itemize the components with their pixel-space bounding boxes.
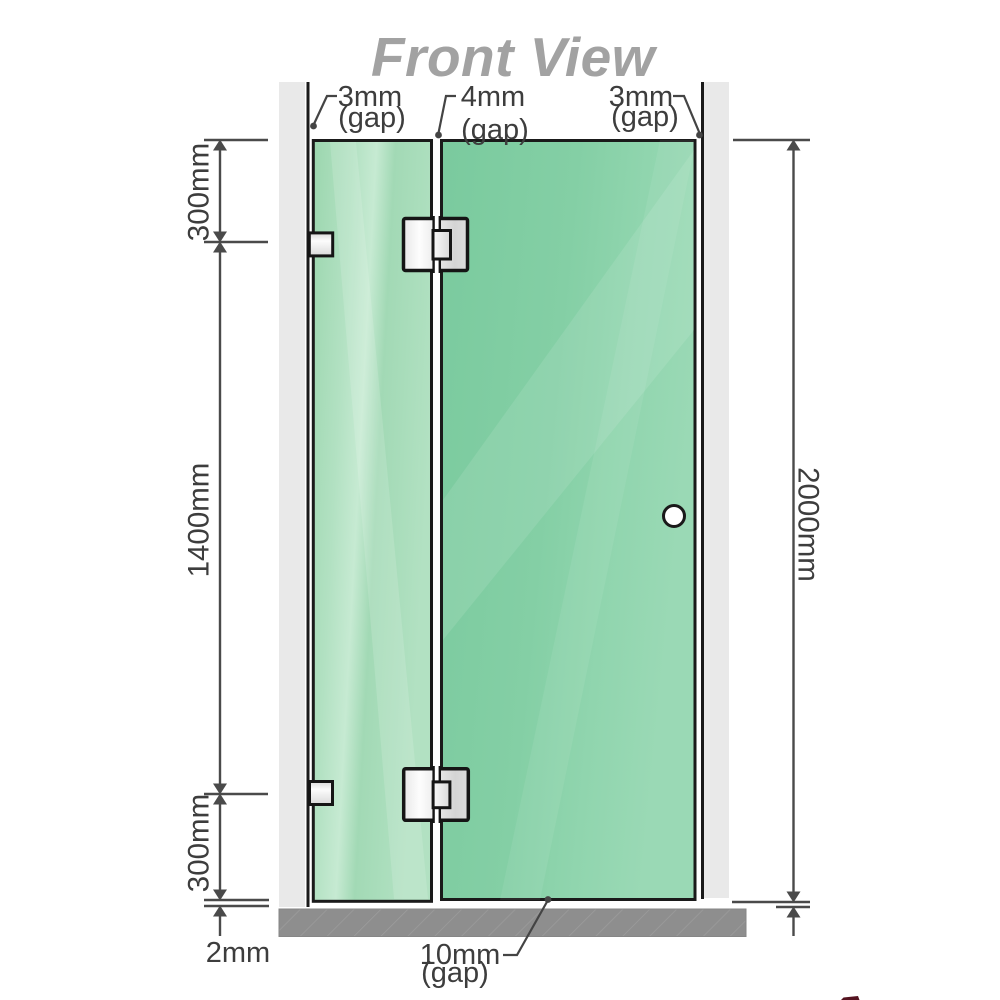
svg-text:(gap): (gap) (461, 114, 529, 146)
svg-text:4mm: 4mm (461, 81, 525, 113)
svg-text:1400mm: 1400mm (183, 463, 216, 578)
svg-text:2000mm: 2000mm (792, 467, 825, 582)
svg-text:2mm: 2mm (206, 937, 270, 969)
svg-text:(gap): (gap) (421, 957, 489, 989)
svg-text:300mm: 300mm (183, 143, 216, 241)
svg-text:300mm: 300mm (183, 794, 216, 892)
svg-text:(gap): (gap) (611, 101, 679, 133)
svg-text:Front View: Front View (371, 26, 658, 88)
svg-text:(gap): (gap) (338, 102, 406, 134)
